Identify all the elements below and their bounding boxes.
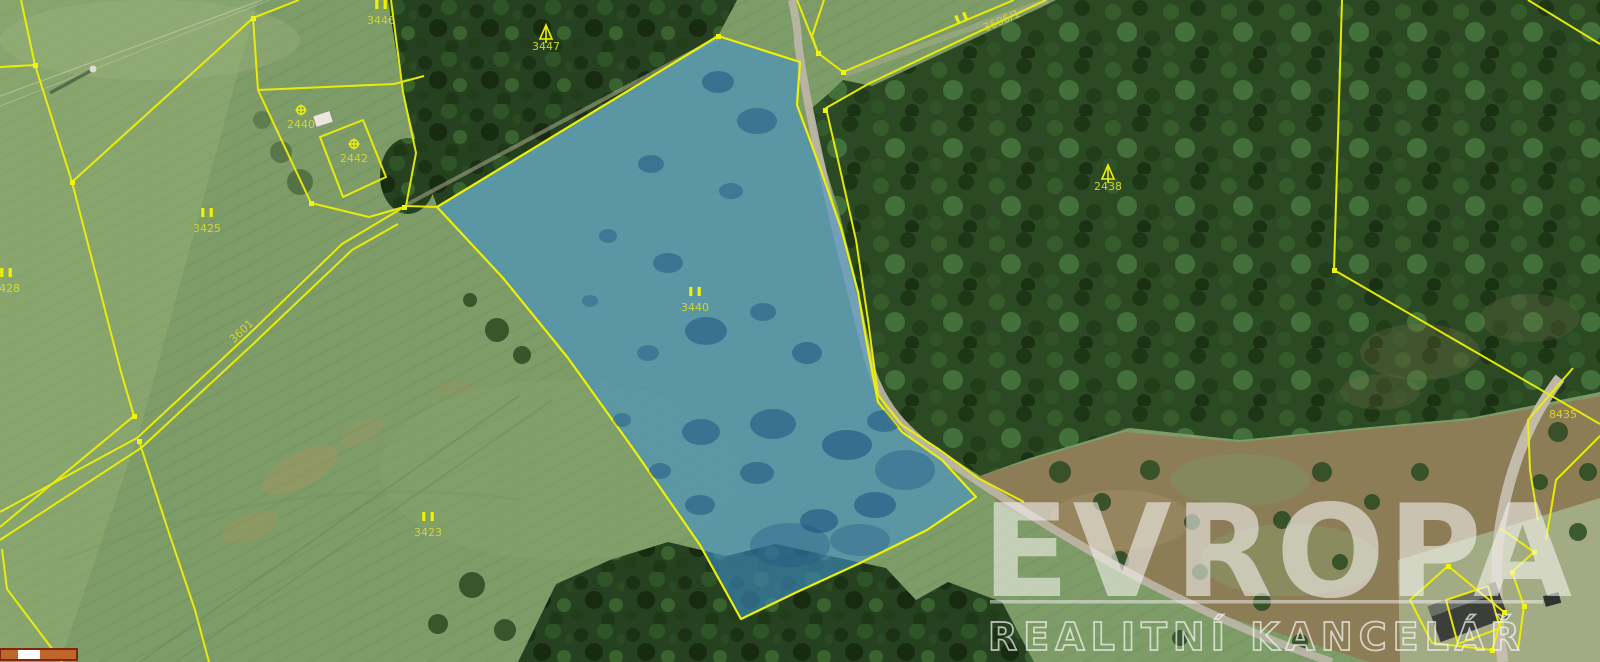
svg-text:2440: 2440: [287, 118, 315, 131]
watermark: EVROPA REALITNÍ KANCELÁŘ: [982, 478, 1575, 659]
svg-text:2438: 2438: [1094, 180, 1122, 193]
svg-text:3428: 3428: [0, 282, 20, 295]
watermark-brand: EVROPA: [982, 478, 1575, 627]
svg-text:3425: 3425: [193, 222, 221, 235]
aerial-map[interactable]: 34463447244024423425342836013606/1344034…: [0, 0, 1600, 662]
svg-text:2442: 2442: [340, 152, 368, 165]
watermark-subtitle: REALITNÍ KANCELÁŘ: [988, 615, 1525, 659]
svg-text:3447: 3447: [532, 40, 560, 53]
svg-text:3440: 3440: [681, 301, 709, 314]
svg-text:3423: 3423: [414, 526, 442, 539]
forest-right: [812, 0, 1600, 476]
svg-text:8435: 8435: [1549, 408, 1577, 421]
svg-text:3446: 3446: [367, 14, 395, 27]
parcel-label: 8435: [1549, 408, 1577, 421]
scale-bar: [0, 649, 77, 660]
